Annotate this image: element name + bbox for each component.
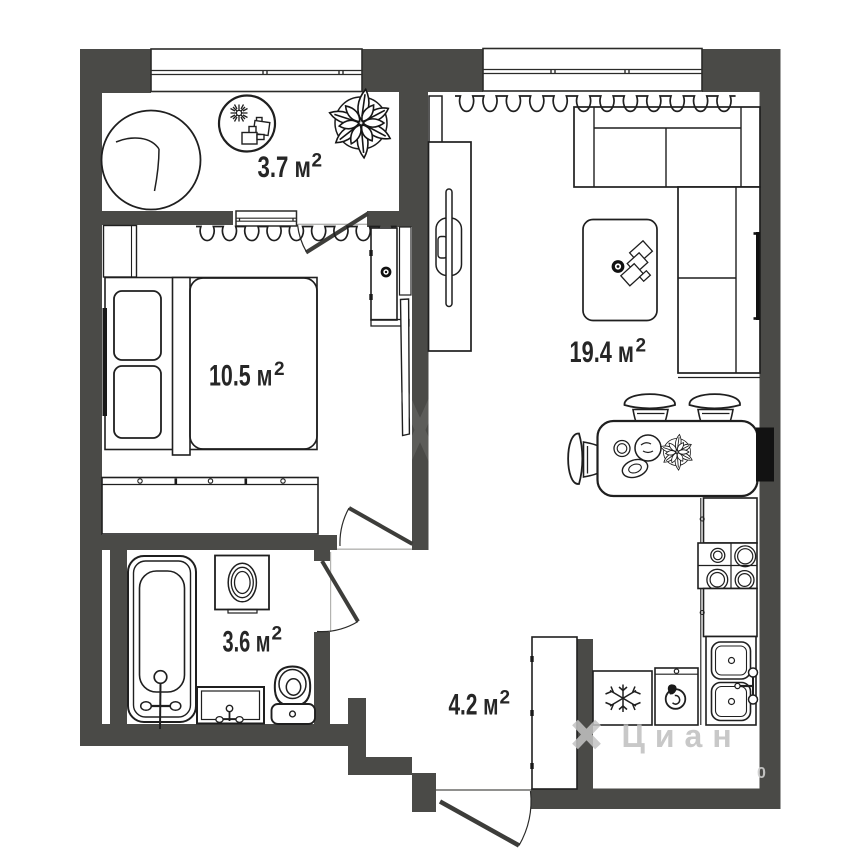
svg-text:3.7 м: 3.7 м: [258, 151, 312, 184]
svg-text:Циан: Циан: [622, 718, 742, 754]
svg-text:2: 2: [636, 336, 647, 357]
svg-text:2: 2: [272, 624, 283, 645]
svg-text:2: 2: [312, 151, 323, 172]
svg-text:2: 2: [500, 688, 511, 709]
svg-text:2: 2: [274, 359, 285, 380]
svg-text:19.4 м: 19.4 м: [570, 336, 635, 369]
svg-text:0: 0: [757, 765, 766, 782]
svg-text:4.2 м: 4.2 м: [449, 689, 499, 722]
svg-text:3.6 м: 3.6 м: [223, 626, 271, 659]
svg-text:10.5 м: 10.5 м: [209, 360, 273, 393]
